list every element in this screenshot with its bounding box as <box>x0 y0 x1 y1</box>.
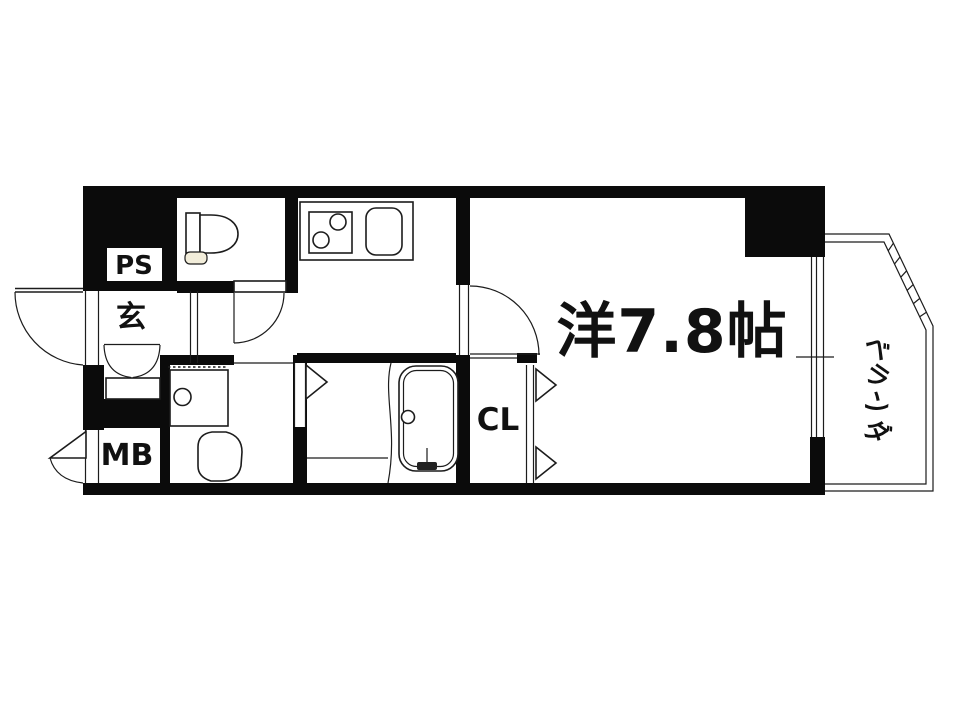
floor-plan: PS 玄 MB CL 洋7.8帖 ベ ラ ン ダ <box>0 0 955 717</box>
wall-bathroom-top <box>297 353 456 363</box>
bathroom-fixtures <box>295 363 459 483</box>
living-door-arc <box>470 286 539 355</box>
shoe-cabinet-bifold <box>104 345 160 400</box>
washer-drain-icon <box>174 389 191 406</box>
mb-door-swing <box>50 430 99 483</box>
toilet-icon <box>185 213 238 264</box>
bath-area-divider-line <box>388 363 392 483</box>
wall-left-upper <box>83 186 104 291</box>
toilet-door-leaf <box>234 281 286 292</box>
entrance-door-arc <box>15 292 83 365</box>
label-veranda: ベ ラ ン ダ <box>858 329 895 451</box>
mb-door-leaf <box>50 432 86 459</box>
toilet-door-swing <box>234 281 286 343</box>
washroom-fixtures <box>168 363 293 481</box>
kitchen-unit <box>300 202 413 260</box>
toilet-door-arc <box>234 293 284 343</box>
label-meter-box: MB <box>101 438 154 473</box>
entrance-door-swing <box>15 289 99 366</box>
living-door-swing <box>460 285 541 355</box>
wall-top <box>83 186 747 198</box>
mb-door-arc <box>50 458 83 483</box>
label-main-room: 洋7.8帖 <box>556 297 787 367</box>
bathroom-folding-door <box>306 365 327 399</box>
wall-right-lower <box>810 437 825 487</box>
entrance-step-line <box>191 291 198 363</box>
label-pipe-space: PS <box>115 251 153 281</box>
veranda-railing-hatch <box>888 243 926 317</box>
label-veranda-char-4: ダ <box>858 413 895 451</box>
wall-top-right-block <box>745 186 825 257</box>
shoe-cabinet-icon <box>106 378 160 399</box>
label-closet: CL <box>477 402 520 438</box>
kitchen-sink-icon <box>366 208 402 255</box>
washbasin-icon <box>198 432 242 481</box>
bath-faucet-icon <box>402 411 415 424</box>
floor-plan-drawing: PS 玄 MB CL 洋7.8帖 ベ ラ ン ダ <box>0 0 955 717</box>
wall-bottom <box>83 483 825 495</box>
bath-drain-icon <box>417 462 437 470</box>
wall-toilet-bottom <box>177 281 234 293</box>
wall-left-mid <box>83 365 104 430</box>
wall-kitchen-right <box>456 198 470 285</box>
wall-below-shoe-cabinet <box>104 399 170 428</box>
sliding-window <box>796 257 834 437</box>
wall-toilet-right <box>285 198 298 293</box>
label-entrance: 玄 <box>116 300 146 335</box>
